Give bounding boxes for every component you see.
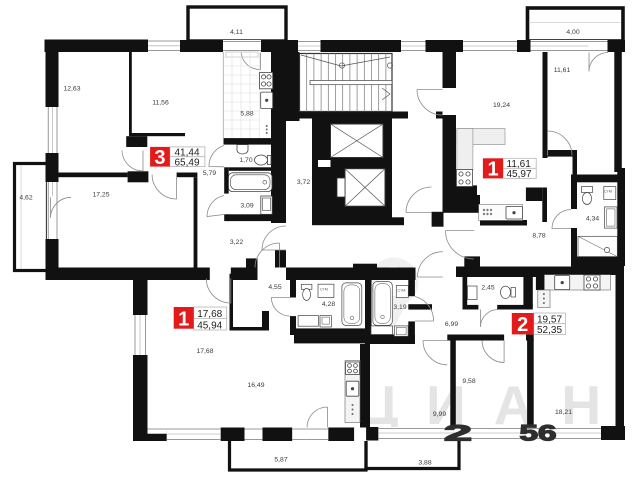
- svg-text:5,79: 5,79: [203, 170, 216, 177]
- svg-text:16,49: 16,49: [247, 382, 264, 389]
- svg-text:1: 1: [178, 308, 189, 330]
- svg-text:2: 2: [444, 421, 472, 446]
- svg-text:11,61: 11,61: [554, 67, 571, 74]
- svg-text:4,00: 4,00: [566, 29, 579, 36]
- svg-text:1: 1: [487, 159, 498, 181]
- svg-text:17,68: 17,68: [197, 309, 222, 320]
- svg-text:3,72: 3,72: [297, 179, 310, 186]
- svg-text:3,09: 3,09: [240, 203, 253, 210]
- svg-text:19,24: 19,24: [493, 102, 510, 109]
- svg-text:4,11: 4,11: [230, 29, 243, 36]
- svg-text:4,28: 4,28: [322, 301, 335, 308]
- svg-text:12,63: 12,63: [63, 86, 80, 93]
- svg-text:9,58: 9,58: [462, 378, 475, 385]
- svg-text:45,94: 45,94: [197, 321, 222, 332]
- svg-text:5,87: 5,87: [274, 457, 287, 464]
- svg-text:СтМ: СтМ: [604, 189, 612, 194]
- svg-text:3,88: 3,88: [418, 460, 431, 467]
- svg-text:17,25: 17,25: [92, 192, 109, 199]
- svg-text:52,35: 52,35: [537, 325, 562, 336]
- svg-text:2: 2: [517, 314, 528, 336]
- svg-text:65,49: 65,49: [175, 158, 200, 169]
- svg-text:5,88: 5,88: [240, 111, 253, 118]
- svg-text:3: 3: [154, 147, 165, 169]
- svg-text:ЦИАН: ЦИАН: [358, 374, 629, 436]
- svg-text:СтМ: СтМ: [398, 288, 406, 293]
- svg-text:8,78: 8,78: [532, 233, 545, 240]
- svg-text:17,68: 17,68: [196, 348, 213, 355]
- svg-text:1,70: 1,70: [239, 157, 252, 164]
- svg-text:56: 56: [520, 421, 557, 446]
- svg-text:3,19: 3,19: [393, 304, 406, 311]
- svg-text:19,57: 19,57: [537, 314, 562, 325]
- svg-text:3,22: 3,22: [230, 239, 243, 246]
- svg-text:СтМ: СтМ: [320, 287, 328, 292]
- svg-text:11,56: 11,56: [152, 100, 169, 107]
- svg-text:45,97: 45,97: [507, 169, 532, 180]
- svg-text:4,55: 4,55: [268, 284, 281, 291]
- svg-text:9,99: 9,99: [433, 411, 446, 418]
- svg-text:18,21: 18,21: [555, 409, 572, 416]
- svg-text:4,34: 4,34: [586, 216, 599, 223]
- svg-text:6,99: 6,99: [445, 321, 458, 328]
- svg-text:4,62: 4,62: [19, 195, 32, 202]
- svg-text:2,45: 2,45: [481, 285, 494, 292]
